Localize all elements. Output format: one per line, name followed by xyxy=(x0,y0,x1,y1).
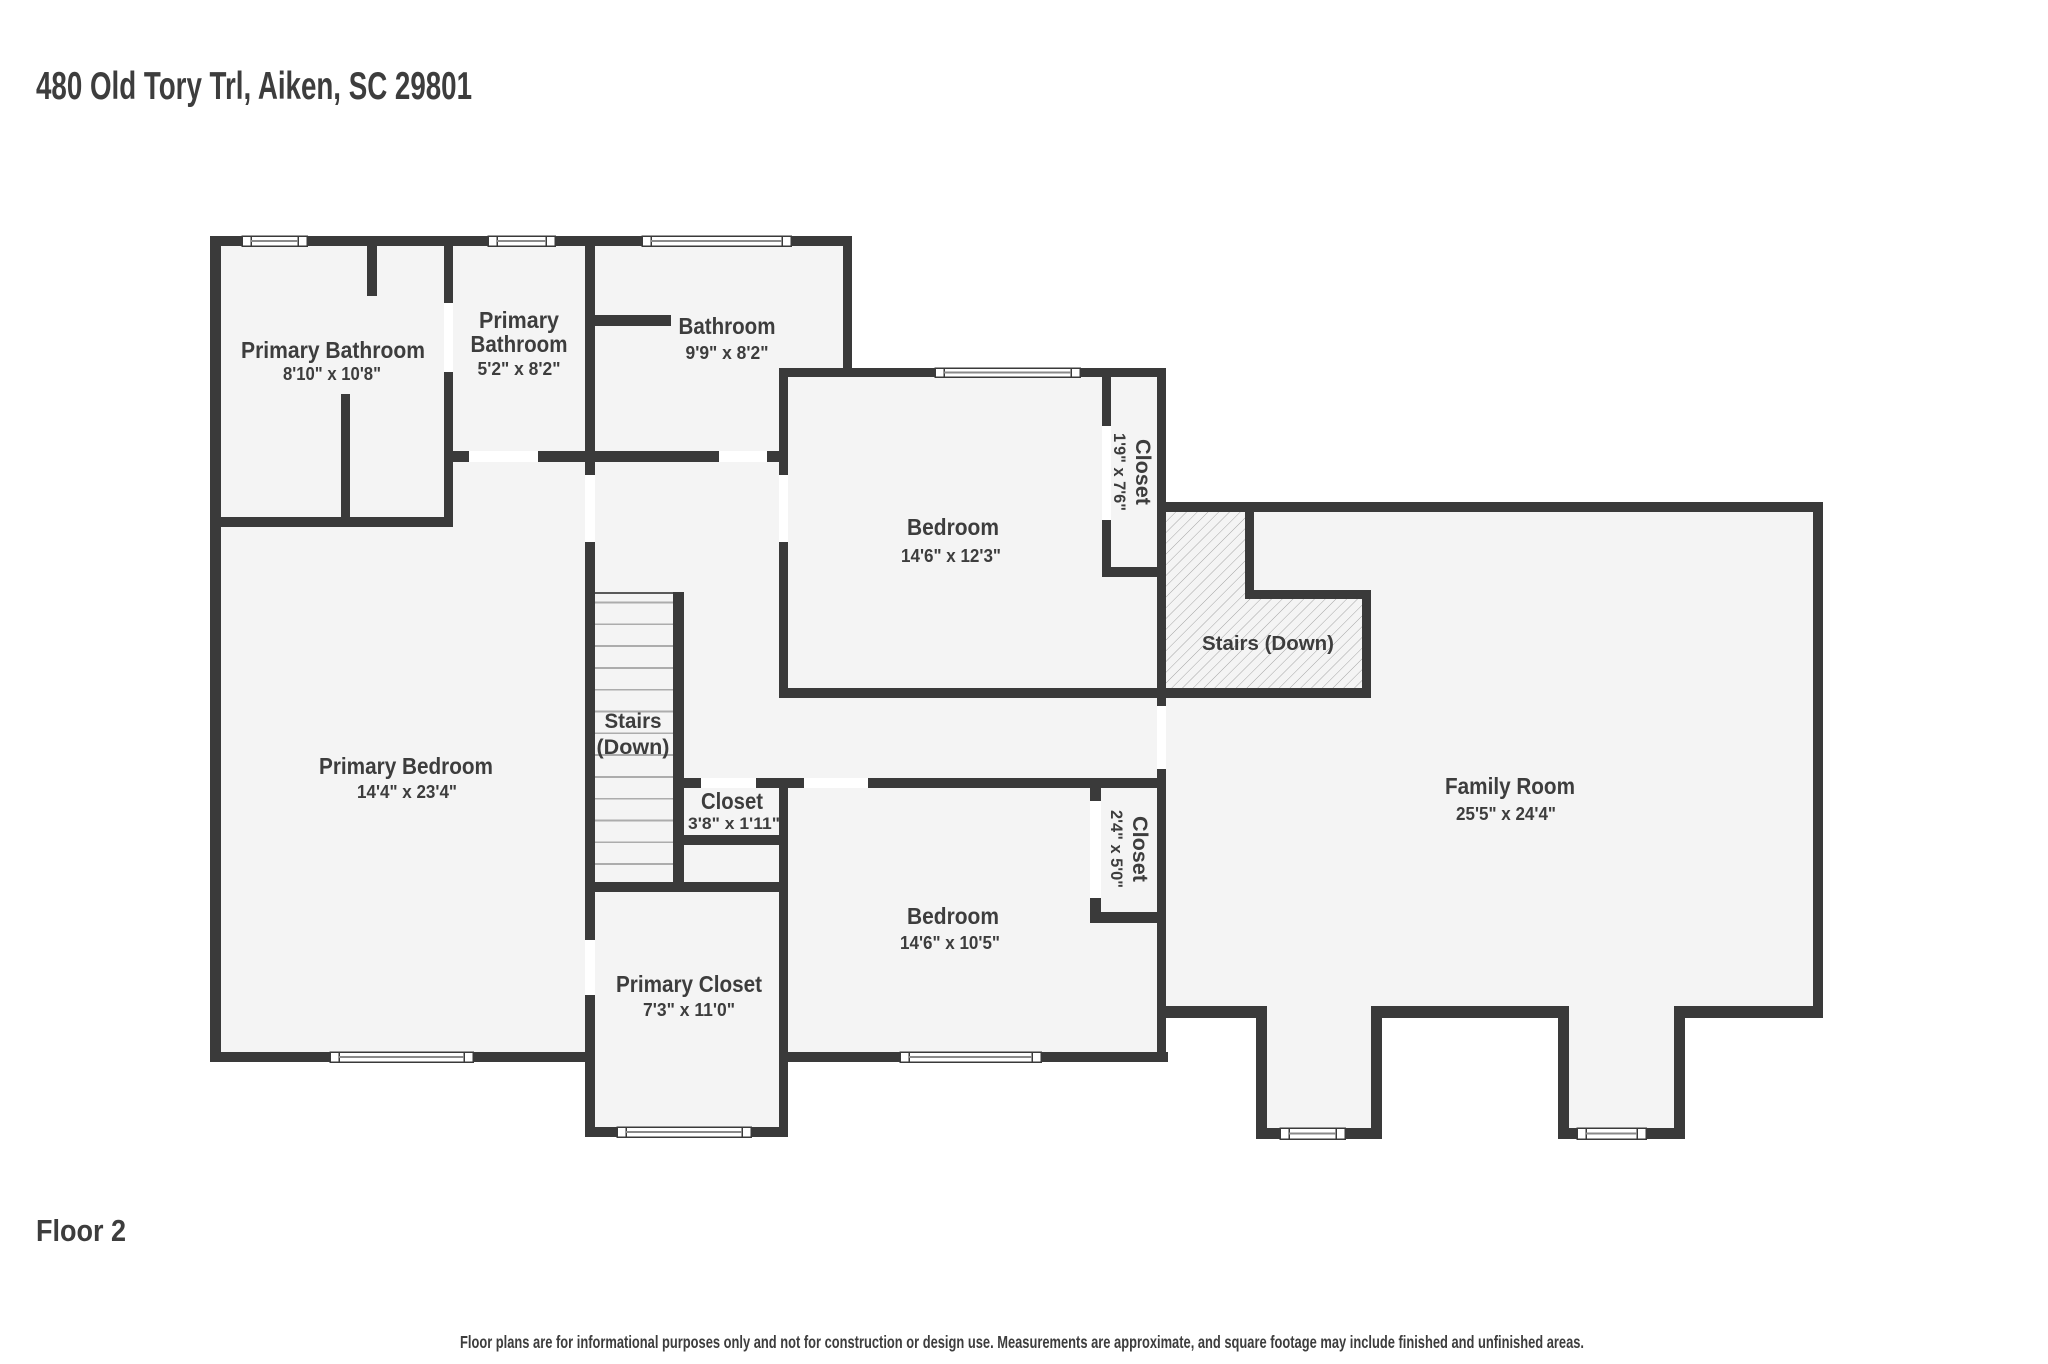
svg-text:14'6" x 10'5": 14'6" x 10'5" xyxy=(900,932,1000,953)
svg-text:Bathroom: Bathroom xyxy=(679,313,776,339)
svg-text:3'8" x 1'11": 3'8" x 1'11" xyxy=(688,814,780,833)
svg-text:Primary Closet: Primary Closet xyxy=(616,971,762,997)
svg-text:Bathroom: Bathroom xyxy=(471,331,568,357)
svg-text:14'6" x 12'3": 14'6" x 12'3" xyxy=(901,545,1001,566)
svg-text:Bedroom: Bedroom xyxy=(907,514,999,540)
svg-text:Family Room: Family Room xyxy=(1445,773,1575,799)
svg-text:Primary: Primary xyxy=(479,307,559,333)
svg-text:Floor plans are for informatio: Floor plans are for informational purpos… xyxy=(460,1332,1584,1352)
svg-text:2'4" x 5'0": 2'4" x 5'0" xyxy=(1107,810,1126,888)
svg-text:Closet: Closet xyxy=(701,788,763,814)
svg-text:Stairs: Stairs xyxy=(605,710,662,733)
svg-text:Floor 2: Floor 2 xyxy=(36,1214,126,1248)
svg-text:8'10" x 10'8": 8'10" x 10'8" xyxy=(283,363,381,384)
svg-text:5'2" x 8'2": 5'2" x 8'2" xyxy=(478,358,561,379)
svg-text:25'5" x 24'4": 25'5" x 24'4" xyxy=(1456,803,1556,824)
svg-text:Primary Bedroom: Primary Bedroom xyxy=(319,753,493,779)
svg-text:(Down): (Down) xyxy=(597,736,670,759)
svg-text:14'4" x 23'4": 14'4" x 23'4" xyxy=(357,781,457,802)
svg-text:Stairs (Down): Stairs (Down) xyxy=(1202,633,1334,655)
svg-text:9'9" x 8'2": 9'9" x 8'2" xyxy=(686,342,769,363)
svg-text:Bedroom: Bedroom xyxy=(907,903,999,929)
svg-text:Primary Bathroom: Primary Bathroom xyxy=(241,337,425,363)
svg-text:1'9" x 7'6": 1'9" x 7'6" xyxy=(1110,433,1129,511)
svg-text:480 Old Tory Trl, Aiken, SC 29: 480 Old Tory Trl, Aiken, SC 29801 xyxy=(36,65,472,108)
svg-text:7'3" x 11'0": 7'3" x 11'0" xyxy=(643,999,735,1020)
svg-text:Closet: Closet xyxy=(1128,816,1151,882)
svg-text:Closet: Closet xyxy=(1131,439,1154,505)
